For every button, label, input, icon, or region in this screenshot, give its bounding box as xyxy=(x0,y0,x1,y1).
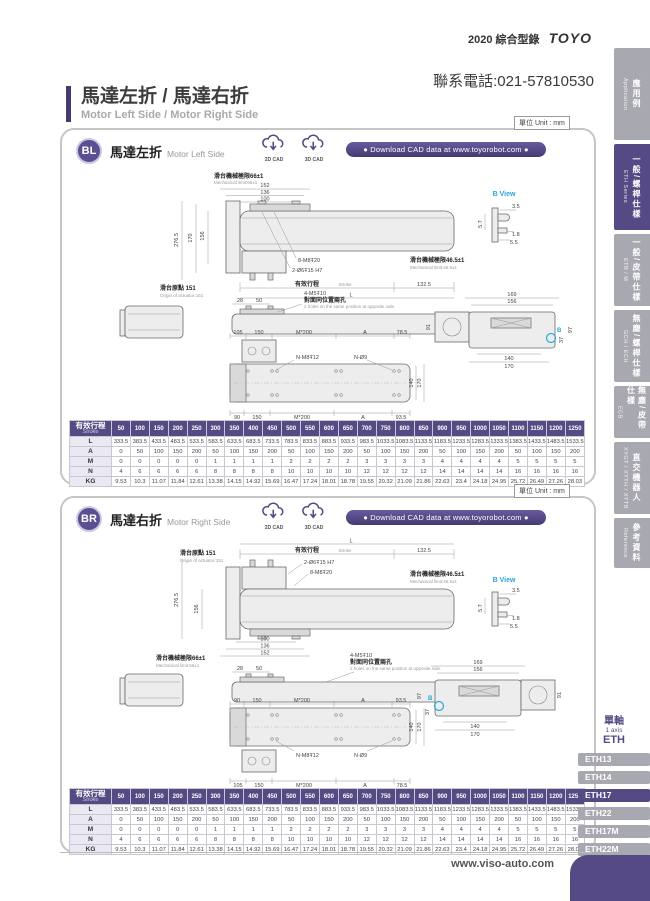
sidebar-tab-xygt-xyth-xytb[interactable]: 直交機器人XYGT / XYTH / XYTB xyxy=(614,442,650,514)
model-nav-series: ETH xyxy=(578,734,650,746)
table-cell: 10 xyxy=(282,467,301,477)
table-cell: 14 xyxy=(490,467,509,477)
br-stroke-table: 有效行程Stroke501001502002503003504004505005… xyxy=(69,788,585,855)
svg-text:132.5: 132.5 xyxy=(417,282,431,288)
stroke-col-header: 1150 xyxy=(527,421,546,437)
table-cell: 1 xyxy=(244,825,263,835)
table-cell: 14 xyxy=(471,467,490,477)
table-cell: 683.5 xyxy=(244,805,263,815)
tab-label-zh: 直交機器人 xyxy=(631,453,642,503)
svg-text:105: 105 xyxy=(233,330,242,336)
table-cell: 383.5 xyxy=(130,805,149,815)
svg-text:37: 37 xyxy=(559,337,565,343)
svg-text:Origin of actuator:151: Origin of actuator:151 xyxy=(180,558,224,563)
stroke-col-header: 500 xyxy=(282,421,301,437)
svg-text:3.5: 3.5 xyxy=(512,204,520,210)
row-label: N xyxy=(70,835,112,845)
cad-2d-label: 2D CAD xyxy=(258,157,290,163)
table-cell: 18.01 xyxy=(319,845,338,855)
table-row: N466668888101010101212121214141414161616… xyxy=(70,835,585,845)
table-cell: 150 xyxy=(319,447,338,457)
table-cell: 16 xyxy=(509,467,528,477)
table-cell: 200 xyxy=(565,447,584,457)
cloud-download-icon xyxy=(259,502,289,522)
svg-text:對面同位置兩孔: 對面同位置兩孔 xyxy=(304,296,346,304)
cad-2d-button[interactable]: 2D CAD xyxy=(258,502,290,531)
table-cell: 4 xyxy=(490,825,509,835)
br-title-en: Motor Right Side xyxy=(167,517,230,527)
table-cell: 200 xyxy=(490,815,509,825)
svg-text:50: 50 xyxy=(256,666,262,672)
svg-text:140: 140 xyxy=(409,722,415,731)
svg-text:Mechanical limit:46.5±1: Mechanical limit:46.5±1 xyxy=(410,579,457,584)
table-cell: 14 xyxy=(433,835,452,845)
svg-text:5.7: 5.7 xyxy=(478,220,484,228)
svg-text:140: 140 xyxy=(409,378,415,387)
table-cell: 200 xyxy=(414,447,433,457)
table-cell: 1183.5 xyxy=(433,437,452,447)
svg-text:5.7: 5.7 xyxy=(478,604,484,612)
bl-cross-section: 169 156 B 91 37 97 140 170 xyxy=(426,292,574,370)
svg-text:Mechanical limit:66±1: Mechanical limit:66±1 xyxy=(214,180,258,185)
table-cell: 3 xyxy=(376,825,395,835)
stroke-col-header: 1100 xyxy=(509,421,528,437)
bl-b-view: B View 3.5 5.7 1.8 5.5 xyxy=(478,191,520,246)
origin-label: 滑台原點 151 xyxy=(180,549,216,557)
stroke-col-header: 800 xyxy=(395,789,414,805)
table-cell: 0 xyxy=(130,457,149,467)
table-cell: 683.5 xyxy=(244,437,263,447)
table-cell: 5 xyxy=(546,457,565,467)
stroke-col-header: 700 xyxy=(357,789,376,805)
model-nav-eth17m[interactable]: ETH17M xyxy=(578,825,650,838)
table-cell: 1383.5 xyxy=(509,805,528,815)
table-cell: 4 xyxy=(471,825,490,835)
table-cell: 4 xyxy=(490,457,509,467)
stroke-col-header: 900 xyxy=(433,421,452,437)
stroke-col-header: 300 xyxy=(206,789,225,805)
table-cell: 333.5 xyxy=(112,437,131,447)
sidebar-tab-reference[interactable]: 參考資料Reference xyxy=(614,518,650,568)
panel-motor-right: BR 馬達右折 Motor Right Side 2D CAD 3D CAD ●… xyxy=(60,496,596,853)
table-cell: 24.18 xyxy=(471,477,490,487)
sidebar-tab-etb-m[interactable]: 一般/皮帶仕樣ETB / M xyxy=(614,234,650,306)
table-cell: 21.09 xyxy=(395,477,414,487)
table-cell: 1183.5 xyxy=(433,805,452,815)
stroke-col-header: 900 xyxy=(433,789,452,805)
table-cell: 3 xyxy=(357,457,376,467)
table-cell: 8 xyxy=(206,467,225,477)
svg-text:3.5: 3.5 xyxy=(512,588,520,594)
stroke-col-header: 350 xyxy=(225,789,244,805)
table-cell: 833.5 xyxy=(301,437,320,447)
table-cell: 150 xyxy=(546,815,565,825)
cad-2d-button[interactable]: 2D CAD xyxy=(258,134,290,163)
svg-text:140: 140 xyxy=(470,724,479,730)
table-cell: 23.4 xyxy=(452,477,471,487)
table-cell: 1333.5 xyxy=(490,805,509,815)
svg-text:150: 150 xyxy=(254,330,263,336)
svg-text:對面同位置兩孔: 對面同位置兩孔 xyxy=(350,658,392,666)
svg-text:A: A xyxy=(361,698,365,704)
model-nav-eth14[interactable]: ETH14 xyxy=(578,771,650,784)
table-cell: 833.5 xyxy=(301,805,320,815)
br-left-dims: 276.5 156 xyxy=(174,560,202,639)
table-cell: 50 xyxy=(433,815,452,825)
svg-text:M*200: M*200 xyxy=(294,698,310,704)
sidebar-tab-eth-series[interactable]: 一般/螺桿仕樣ETH Series xyxy=(614,144,650,230)
table-cell: 16 xyxy=(527,467,546,477)
table-cell: 11.84 xyxy=(168,477,187,487)
tab-label-en: ETH Series xyxy=(622,170,628,203)
table-cell: 24.95 xyxy=(490,477,509,487)
bl-left-dims: 276.5 170 156 xyxy=(174,201,208,280)
table-cell: 21.09 xyxy=(395,845,414,855)
svg-text:Mechanical limit:46.5±1: Mechanical limit:46.5±1 xyxy=(410,265,457,270)
table-cell: 2 xyxy=(282,825,301,835)
table-row: L333.5383.5433.5483.5533.5583.5633.5683.… xyxy=(70,805,585,815)
stroke-col-header: 750 xyxy=(376,789,395,805)
table-cell: 12 xyxy=(357,835,376,845)
table-cell: 533.5 xyxy=(187,805,206,815)
table-cell: 583.5 xyxy=(206,437,225,447)
n-m8-label: N-M8Ŧ12 xyxy=(296,753,319,759)
bl-stroke-dim: 有效行程 Stroke 132.5 L xyxy=(240,280,454,299)
stroke-col-header: 450 xyxy=(263,789,282,805)
row-label: KG xyxy=(70,845,112,855)
table-cell: 1233.5 xyxy=(452,437,471,447)
table-cell: 100 xyxy=(376,815,395,825)
bl-title-en: Motor Left Side xyxy=(167,149,225,159)
table-cell: 3 xyxy=(414,825,433,835)
table-cell: 17.24 xyxy=(301,477,320,487)
table-cell: 50 xyxy=(509,815,528,825)
table-cell: 6 xyxy=(187,467,206,477)
origin-label: 滑台原點 151 xyxy=(160,284,196,292)
table-cell: 100 xyxy=(149,447,168,457)
table-cell: 12.61 xyxy=(187,477,206,487)
table-cell: 4 xyxy=(471,457,490,467)
table-cell: 983.5 xyxy=(357,805,376,815)
table-cell: 6 xyxy=(168,467,187,477)
table-cell: 733.5 xyxy=(263,437,282,447)
svg-text:M*200: M*200 xyxy=(296,330,312,336)
row-label: L xyxy=(70,805,112,815)
page-title-en: Motor Left Side / Motor Right Side xyxy=(81,108,258,122)
table-cell: 100 xyxy=(225,447,244,457)
table-cell: 10 xyxy=(282,835,301,845)
n-o9-label: N-Ø9 xyxy=(354,753,367,759)
table-cell: 13.38 xyxy=(206,477,225,487)
table-cell: 10 xyxy=(338,467,357,477)
table-cell: 2 xyxy=(301,825,320,835)
sidebar-tab-ecb[interactable]: 無塵/皮帶仕樣ECB xyxy=(614,386,650,438)
svg-text:170: 170 xyxy=(417,378,423,387)
table-cell: 16.47 xyxy=(282,477,301,487)
table-cell: 4 xyxy=(112,835,131,845)
holes-4m5-label: 4-M5Ŧ10 xyxy=(304,291,326,297)
svg-text:L: L xyxy=(349,293,352,299)
table-cell: 1 xyxy=(244,457,263,467)
row-label: A xyxy=(70,815,112,825)
table-cell: 19.55 xyxy=(357,477,376,487)
tab-label-zh: 無塵/皮帶仕樣 xyxy=(626,386,648,438)
svg-text:B: B xyxy=(557,328,562,334)
table-cell: 50 xyxy=(282,815,301,825)
table-cell: 10.3 xyxy=(130,477,149,487)
table-cell: 0 xyxy=(187,825,206,835)
mech-limit-66-label: 滑台機械極限66±1 xyxy=(214,172,264,180)
table-cell: 4 xyxy=(433,825,452,835)
cad-3d-button[interactable]: 3D CAD xyxy=(298,134,330,163)
svg-text:97: 97 xyxy=(568,327,574,333)
table-cell: 10 xyxy=(301,467,320,477)
table-cell: 16.47 xyxy=(282,845,301,855)
table-cell: 12.61 xyxy=(187,845,206,855)
svg-text:50: 50 xyxy=(256,298,262,304)
svg-text:140: 140 xyxy=(504,356,513,362)
table-cell: 20.32 xyxy=(376,477,395,487)
svg-text:L: L xyxy=(349,539,352,545)
table-cell: 1033.5 xyxy=(376,437,395,447)
row-label: A xyxy=(70,447,112,457)
model-nav-group-zh: 單軸 xyxy=(578,712,650,727)
svg-text:2 holes on the same position a: 2 holes on the same position at opposite… xyxy=(304,304,395,309)
table-cell: 433.5 xyxy=(149,805,168,815)
svg-text:152: 152 xyxy=(260,183,269,189)
stroke-header-cell: 有效行程Stroke xyxy=(70,789,112,805)
table-cell: 12 xyxy=(395,467,414,477)
table-cell: 2 xyxy=(338,457,357,467)
unit-label-bl: 單位 Unit : mm xyxy=(514,116,570,130)
table-cell: 14.92 xyxy=(244,845,263,855)
table-cell: 1483.5 xyxy=(546,805,565,815)
table-cell: 1433.5 xyxy=(527,437,546,447)
table-cell: 18.78 xyxy=(338,845,357,855)
table-cell: 150 xyxy=(244,815,263,825)
table-cell: 100 xyxy=(225,815,244,825)
stroke-col-header: 200 xyxy=(168,789,187,805)
n-m8-label: N-M8Ŧ12 xyxy=(296,355,319,361)
table-cell: 50 xyxy=(282,447,301,457)
stroke-col-header: 1250 xyxy=(565,421,584,437)
table-cell: 150 xyxy=(471,447,490,457)
stroke-col-header: 1150 xyxy=(527,789,546,805)
cad-3d-label: 3D CAD xyxy=(298,157,330,163)
model-nav-eth13[interactable]: ETH13 xyxy=(578,753,650,766)
page-corner-decoration xyxy=(570,855,650,901)
svg-text:28: 28 xyxy=(237,666,243,672)
bl-stroke-table: 有效行程Stroke501001502002503003504004505005… xyxy=(69,420,585,487)
mech-limit-46-label: 滑台機械極限46.5±1 xyxy=(410,570,465,578)
svg-text:276.5: 276.5 xyxy=(174,593,180,607)
table-cell: 983.5 xyxy=(357,437,376,447)
model-nav-list: ETH13ETH14ETH17ETH22ETH17METH22M xyxy=(578,753,650,856)
cloud-download-icon xyxy=(259,134,289,154)
holes-4m5-label: 4-M5Ŧ10 xyxy=(350,653,372,659)
table-cell: 333.5 xyxy=(112,805,131,815)
table-cell: 1083.5 xyxy=(395,805,414,815)
table-cell: 1283.5 xyxy=(471,437,490,447)
table-cell: 11.07 xyxy=(149,845,168,855)
table-row: L333.5383.5433.5483.5533.5583.5633.5683.… xyxy=(70,437,585,447)
svg-text:150: 150 xyxy=(252,698,261,704)
table-cell: 50 xyxy=(206,815,225,825)
table-cell: 14 xyxy=(452,835,471,845)
table-cell: 100 xyxy=(149,815,168,825)
table-cell: 15.69 xyxy=(263,477,282,487)
stroke-col-header: 950 xyxy=(452,789,471,805)
page-title: 馬達左折 / 馬達右折 Motor Left Side / Motor Righ… xyxy=(66,86,258,122)
svg-text:170: 170 xyxy=(504,364,513,370)
stroke-col-header: 550 xyxy=(301,789,320,805)
table-cell: 11.07 xyxy=(149,477,168,487)
table-cell: 12 xyxy=(376,467,395,477)
holes-8m8-label: 8-M8Ŧ20 xyxy=(298,258,320,264)
table-cell: 2 xyxy=(319,825,338,835)
table-cell: 50 xyxy=(509,447,528,457)
table-cell: 533.5 xyxy=(187,437,206,447)
stroke-header-cell: 有效行程Stroke xyxy=(70,421,112,437)
table-cell: 5 xyxy=(527,825,546,835)
bl-badge: BL xyxy=(76,138,102,164)
svg-text:1.8: 1.8 xyxy=(512,616,520,622)
stroke-col-header: 950 xyxy=(452,421,471,437)
table-cell: 0 xyxy=(112,825,131,835)
table-cell: 10 xyxy=(319,835,338,845)
svg-text:132.5: 132.5 xyxy=(417,548,431,554)
table-cell: 1483.5 xyxy=(546,437,565,447)
table-cell: 18.78 xyxy=(338,477,357,487)
svg-text:156: 156 xyxy=(507,299,516,305)
bl-side-view: 滑台機械極限66±1 Mechanical limit:66±1 152 136… xyxy=(160,172,465,299)
table-cell: 14 xyxy=(471,835,490,845)
table-cell: 5 xyxy=(509,825,528,835)
table-row: KG9.5310.311.0711.8412.6113.3814.1514.92… xyxy=(70,477,585,487)
tab-label-en: XYGT / XYTH / XYTB xyxy=(622,447,628,509)
table-cell: 26.49 xyxy=(527,845,546,855)
stroke-col-header: 800 xyxy=(395,421,414,437)
catalog-year: 2020 xyxy=(468,34,492,46)
sidebar-tab-application[interactable]: 應用例Application xyxy=(614,48,650,140)
download-cad-link[interactable]: ● Download CAD data at www.toyorobot.com… xyxy=(346,142,546,157)
table-cell: 383.5 xyxy=(130,437,149,447)
catalog-title: 綜合型錄 xyxy=(496,34,540,46)
table-cell: 21.86 xyxy=(414,845,433,855)
table-cell: 1133.5 xyxy=(414,437,433,447)
unit-label-br: 單位 Unit : mm xyxy=(514,484,570,498)
svg-text:91: 91 xyxy=(557,692,563,698)
table-cell: 10 xyxy=(338,835,357,845)
table-cell: 4 xyxy=(452,457,471,467)
model-nav-eth22[interactable]: ETH22 xyxy=(578,807,650,820)
svg-text:169: 169 xyxy=(473,660,482,666)
model-nav-group-en: 1 axis xyxy=(578,727,650,734)
table-cell: 1533.5 xyxy=(565,437,584,447)
tab-label-en: Reference xyxy=(622,528,628,558)
catalog-page: { "page": { "header": {"year": "2020", "… xyxy=(0,0,650,901)
mech-limit-66-label: 滑台機械極限66±1 xyxy=(156,654,206,662)
table-cell: 19.55 xyxy=(357,845,376,855)
svg-text:136: 136 xyxy=(260,190,269,196)
table-cell: 2 xyxy=(301,457,320,467)
svg-text:28: 28 xyxy=(237,298,243,304)
table-cell: 24.95 xyxy=(490,845,509,855)
contact-phone: 聯系電話:021-57810530 xyxy=(433,70,594,91)
table-cell: 0 xyxy=(130,825,149,835)
stroke-col-header: 650 xyxy=(338,789,357,805)
table-cell: 3 xyxy=(395,825,414,835)
table-cell: 5 xyxy=(527,457,546,467)
table-cell: 9.53 xyxy=(112,477,131,487)
table-cell: 100 xyxy=(527,815,546,825)
table-row: M0000011112222333344445555 xyxy=(70,457,585,467)
stroke-col-header: 750 xyxy=(376,421,395,437)
stroke-col-header: 250 xyxy=(187,789,206,805)
model-nav-eth17[interactable]: ETH17 xyxy=(578,789,650,802)
table-cell: 10.3 xyxy=(130,845,149,855)
stroke-col-header: 300 xyxy=(206,421,225,437)
svg-text:170: 170 xyxy=(188,233,194,242)
table-cell: 200 xyxy=(187,447,206,457)
table-cell: 6 xyxy=(130,835,149,845)
table-cell: 2 xyxy=(319,457,338,467)
table-cell: 3 xyxy=(376,457,395,467)
svg-text:90: 90 xyxy=(234,698,240,704)
table-cell: 0 xyxy=(149,457,168,467)
download-cad-link[interactable]: ● Download CAD data at www.toyorobot.com… xyxy=(346,510,546,525)
table-cell: 50 xyxy=(130,447,149,457)
website-link[interactable]: www.viso-auto.com xyxy=(451,858,554,870)
svg-text:2 holes on the same position a: 2 holes on the same position at opposite… xyxy=(350,666,441,671)
br-bottom-view: 90 150 M*200 A 93.5 140 170 N-M8Ŧ12 N-Ø9 xyxy=(230,698,424,788)
table-cell: 1033.5 xyxy=(376,805,395,815)
table-cell: 8 xyxy=(244,467,263,477)
table-cell: 6 xyxy=(168,835,187,845)
table-cell: 0 xyxy=(112,457,131,467)
stroke-label: 有效行程 xyxy=(295,280,319,288)
stroke-col-header: 1000 xyxy=(471,789,490,805)
br-section-title: 馬達右折 Motor Right Side xyxy=(110,510,230,529)
table-cell: 783.5 xyxy=(282,805,301,815)
bl-left-profile xyxy=(120,306,183,338)
svg-text:Stroke: Stroke xyxy=(338,282,352,287)
tab-label-en: ETB / M xyxy=(622,258,628,281)
table-cell: 150 xyxy=(168,815,187,825)
svg-text:A: A xyxy=(363,330,367,336)
table-cell: 483.5 xyxy=(168,437,187,447)
tab-label-zh: 參考資料 xyxy=(631,523,642,563)
table-cell: 150 xyxy=(395,815,414,825)
table-cell: 0 xyxy=(112,815,131,825)
svg-text:276.5: 276.5 xyxy=(174,233,180,247)
table-cell: 150 xyxy=(546,447,565,457)
table-cell: 433.5 xyxy=(149,437,168,447)
table-cell: 100 xyxy=(301,815,320,825)
stroke-col-header: 550 xyxy=(301,421,320,437)
table-cell: 783.5 xyxy=(282,437,301,447)
tab-label-zh: 應用例 xyxy=(631,79,642,109)
svg-text:Origin of actuator:151: Origin of actuator:151 xyxy=(160,293,204,298)
cad-3d-button[interactable]: 3D CAD xyxy=(298,502,330,531)
sidebar-tab-gch-ech[interactable]: 無塵/螺桿仕樣GCH / ECH xyxy=(614,310,650,382)
stroke-col-header: 600 xyxy=(319,421,338,437)
table-cell: 3 xyxy=(357,825,376,835)
svg-text:136: 136 xyxy=(260,644,269,650)
tab-label-zh: 一般/皮帶仕樣 xyxy=(631,238,642,302)
table-cell: 3 xyxy=(395,457,414,467)
svg-text:5.5: 5.5 xyxy=(510,240,518,246)
